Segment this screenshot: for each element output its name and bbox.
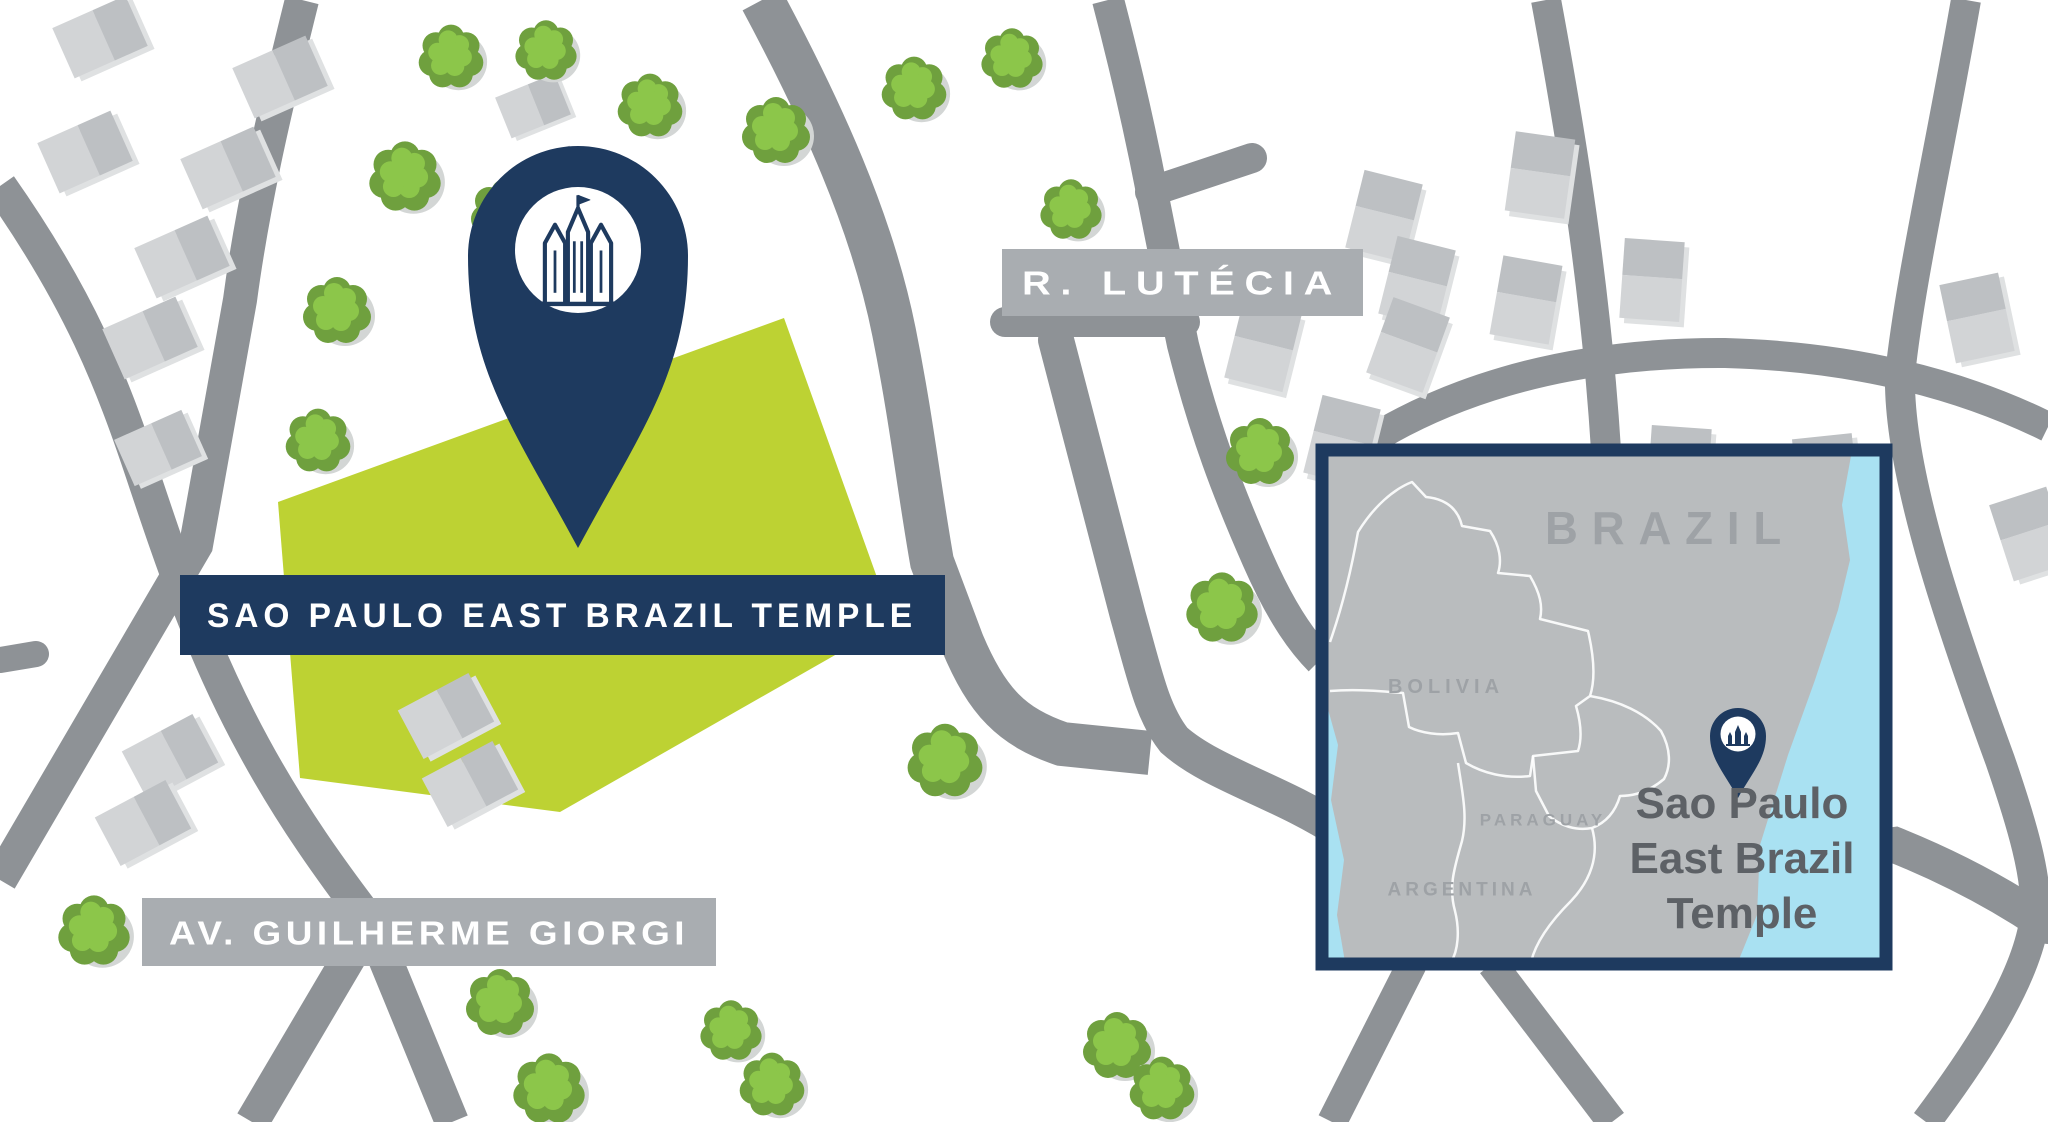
inset-caption-line: East Brazil [1630, 834, 1855, 883]
tree-icon [700, 1000, 765, 1062]
temple-name-banner: SAO PAULO EAST BRAZIL TEMPLE [180, 575, 945, 655]
tree-icon [515, 20, 580, 82]
building [1989, 485, 2048, 586]
tree-icon [740, 1053, 808, 1119]
tree-icon [882, 57, 950, 123]
tree-icon [303, 277, 375, 346]
tree-icon [1130, 1057, 1198, 1122]
tree-icon [369, 141, 445, 213]
tree-icon [908, 724, 987, 800]
tree-icon [466, 969, 538, 1038]
inset-caption-line: Sao Paulo [1636, 779, 1849, 828]
inset-label-paraguay: PARAGUAY [1480, 811, 1606, 830]
building [52, 0, 154, 83]
tree-icon [1040, 179, 1105, 241]
building [1939, 272, 2020, 369]
tree-icon [618, 74, 686, 140]
street-label-lutecia-text: R. LUTÉCIA [1022, 265, 1342, 302]
building [1619, 238, 1690, 327]
road [1332, 964, 1412, 1122]
inset-label-argentina: ARGENTINA [1388, 880, 1537, 901]
road [1492, 964, 1612, 1122]
tree-icon [1186, 572, 1262, 644]
building [37, 109, 139, 199]
road [1150, 158, 1252, 192]
temple-name-text: SAO PAULO EAST BRAZIL TEMPLE [207, 597, 917, 635]
street-label-guilherme-text: AV. GUILHERME GIORGI [169, 915, 689, 952]
tree-icon [419, 25, 487, 91]
tree-icon [513, 1053, 589, 1122]
building [1489, 255, 1568, 350]
building [134, 214, 236, 304]
street-label-guilherme: AV. GUILHERME GIORGI [142, 898, 716, 966]
building [232, 34, 334, 124]
road [0, 654, 36, 660]
inset-label-brazil: BRAZIL [1545, 502, 1795, 554]
street-label-lutecia: R. LUTÉCIA [1002, 249, 1363, 316]
inset-caption-line: Temple [1667, 889, 1818, 938]
tree-icon [58, 895, 134, 967]
tree-icon [981, 28, 1046, 90]
tree-icon [286, 409, 354, 475]
temple-locator-map: R. LUTÉCIA AV. GUILHERME GIORGI SAO PAUL… [0, 0, 2048, 1122]
inset-label-bolivia: BOLIVIA [1388, 676, 1504, 698]
building [495, 72, 576, 142]
inset-map: BRAZIL BOLIVIA PARAGUAY ARGENTINA Sao Pa… [1322, 450, 1886, 964]
building [1504, 131, 1580, 224]
building [95, 778, 198, 871]
